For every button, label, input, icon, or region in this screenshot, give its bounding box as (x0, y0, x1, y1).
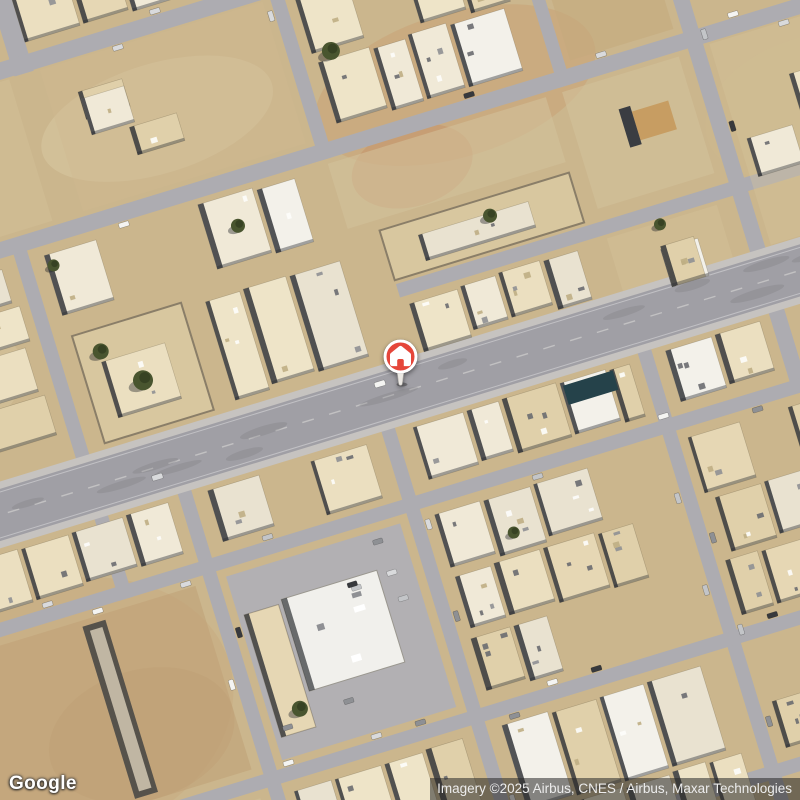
attribution-bar: Imagery ©2025 Airbus, CNES / Airbus, Max… (430, 778, 800, 800)
satellite-map[interactable] (0, 0, 800, 800)
map-viewport: Google Imagery ©2025 Airbus, CNES / Airb… (0, 0, 800, 800)
attribution-text: Imagery ©2025 Airbus, CNES / Airbus, Max… (437, 781, 792, 796)
google-logo[interactable]: Google (9, 773, 77, 795)
map-imagery-rotated (0, 0, 800, 800)
